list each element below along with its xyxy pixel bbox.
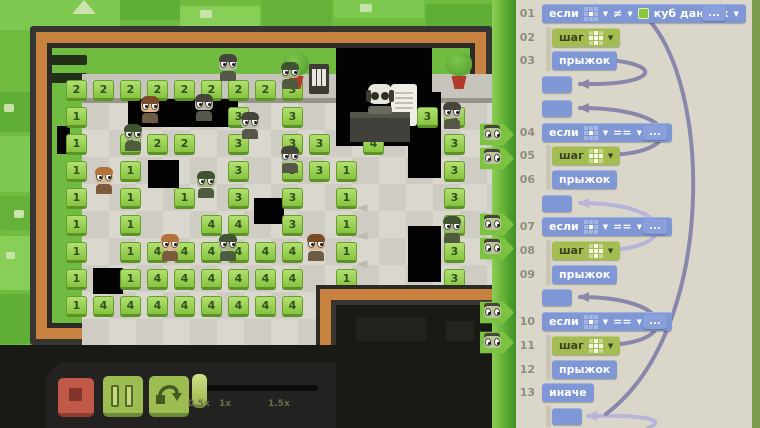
number-tile: 4	[282, 269, 303, 290]
number-tile: 3	[228, 161, 249, 182]
indent-guide	[546, 240, 551, 285]
floor-arrow-icon: ◄	[356, 198, 368, 216]
number-tile: 3	[444, 188, 465, 209]
number-tile: 3	[309, 161, 330, 182]
worker-character	[123, 124, 143, 151]
jump-block[interactable]: прыжок	[552, 360, 617, 379]
jump-label[interactable]	[542, 289, 572, 306]
number-tile: 2	[66, 80, 87, 101]
number-tile: 1	[120, 269, 141, 290]
number-tile: 4	[228, 215, 249, 236]
pause-icon	[111, 385, 119, 407]
chevron-down-icon: ▼	[603, 318, 608, 326]
number-tile: 1	[66, 215, 87, 236]
chevron-down-icon: ▼	[603, 223, 608, 231]
options-button[interactable]: ...	[643, 314, 667, 329]
worker-character	[196, 171, 216, 198]
number-tile: 1	[336, 188, 357, 209]
number-tile: 1	[174, 188, 195, 209]
boss-character	[366, 84, 394, 114]
number-tile: 4	[93, 296, 114, 317]
stop-icon	[69, 388, 82, 401]
direction-grid-dropdown[interactable]	[589, 244, 603, 258]
number-tile: 2	[228, 80, 249, 101]
chevron-down-icon: ▼	[637, 129, 642, 137]
operator-dropdown[interactable]: ==	[613, 220, 631, 233]
step-over-button[interactable]	[149, 376, 189, 417]
indent-guide	[546, 145, 551, 190]
chevron-down-icon: ▼	[603, 129, 608, 137]
number-tile: 1	[120, 215, 141, 236]
pit-void	[254, 198, 284, 224]
line-number: 13	[515, 386, 535, 399]
line-number: 01	[515, 7, 535, 20]
speed-label: 1x	[219, 399, 231, 409]
number-tile: 1	[66, 242, 87, 263]
jump-label[interactable]	[552, 408, 582, 425]
line-number: 11	[515, 339, 535, 352]
chevron-down-icon: ▼	[608, 342, 613, 350]
line-number: 06	[515, 173, 535, 186]
pit-void	[148, 160, 179, 188]
direction-grid-dropdown[interactable]	[584, 220, 598, 234]
direction-grid-dropdown[interactable]	[589, 339, 603, 353]
pit-void	[408, 226, 441, 282]
number-tile: 4	[201, 269, 222, 290]
line-number: 07	[515, 220, 535, 233]
number-tile: 4	[255, 269, 276, 290]
number-tile: 4	[120, 296, 141, 317]
chevron-down-icon: ▼	[637, 318, 642, 326]
direction-grid-dropdown[interactable]	[589, 31, 603, 45]
worker-character	[194, 94, 214, 121]
chevron-down-icon: ▼	[603, 10, 608, 18]
chevron-down-icon: ▼	[627, 10, 632, 18]
number-tile: 4	[201, 296, 222, 317]
boss-desk	[350, 112, 410, 142]
step-block[interactable]: шаг▼	[552, 336, 620, 355]
worker-character	[218, 234, 238, 261]
stop-button[interactable]	[58, 378, 94, 417]
worker-character	[442, 102, 462, 129]
number-tile: 3	[282, 188, 303, 209]
number-tile: 1	[66, 269, 87, 290]
number-tile: 3	[444, 242, 465, 263]
direction-grid-dropdown[interactable]	[584, 7, 598, 21]
data-cube-icon	[638, 8, 649, 19]
line-number: 04	[515, 126, 535, 139]
number-tile: 4	[174, 296, 195, 317]
number-tile: 3	[282, 107, 303, 128]
line-number: 10	[515, 315, 535, 328]
speed-label: 1.5x	[268, 399, 290, 409]
jump-block[interactable]: прыжок	[552, 265, 617, 284]
file-cabinet-icon	[309, 64, 329, 94]
chevron-down-icon: ▼	[608, 34, 613, 42]
number-tile: 2	[93, 80, 114, 101]
jump-block[interactable]: прыжок	[552, 51, 617, 70]
number-tile: 1	[66, 296, 87, 317]
number-tile: 1	[66, 188, 87, 209]
number-tile: 3	[309, 134, 330, 155]
pit-void	[93, 268, 123, 294]
number-tile: 2	[174, 80, 195, 101]
number-tile: 4	[228, 269, 249, 290]
number-tile: 3	[417, 107, 438, 128]
line-number: 08	[515, 244, 535, 257]
direction-grid-dropdown[interactable]	[584, 315, 598, 329]
jump-label[interactable]	[542, 100, 572, 117]
number-tile: 3	[228, 188, 249, 209]
worker-character	[306, 234, 326, 261]
line-number: 09	[515, 268, 535, 281]
worker-character	[442, 216, 462, 243]
speed-slider-track[interactable]	[198, 385, 318, 391]
floor-arrow-icon: ◄	[356, 226, 368, 244]
step-block[interactable]: шаг▼	[552, 28, 620, 47]
number-tile: 2	[174, 134, 195, 155]
number-tile: 3	[444, 134, 465, 155]
glasses-icon	[371, 92, 379, 100]
number-tile: 4	[282, 296, 303, 317]
game-screen: ◄◄◄ 222222223133331222333431133313111331…	[0, 0, 760, 428]
number-tile: 1	[336, 215, 357, 236]
number-tile: 2	[147, 134, 168, 155]
chevron-down-icon: ▼	[733, 10, 738, 18]
indent-guide	[546, 27, 551, 71]
jump-block[interactable]: прыжок	[552, 170, 617, 189]
number-tile: 4	[147, 269, 168, 290]
direction-grid-dropdown[interactable]	[584, 126, 598, 140]
number-tile: 1	[66, 161, 87, 182]
direction-grid-dropdown[interactable]	[589, 149, 603, 163]
board-step-cutout	[316, 285, 492, 345]
options-button[interactable]: ...	[643, 125, 667, 140]
right-edge	[752, 0, 760, 428]
number-tile: 2	[120, 80, 141, 101]
floor-arrow-icon: ◄	[356, 254, 368, 272]
number-tile: 4	[255, 242, 276, 263]
line-number: 12	[515, 363, 535, 376]
jump-label[interactable]	[542, 76, 572, 93]
number-tile: 1	[336, 161, 357, 182]
worker-character	[280, 146, 300, 173]
number-tile: 4	[255, 296, 276, 317]
line-number: 05	[515, 149, 535, 162]
number-tile: 3	[444, 161, 465, 182]
number-tile: 1	[66, 107, 87, 128]
jump-label[interactable]	[542, 195, 572, 212]
worker-character	[94, 167, 114, 194]
number-tile: 4	[201, 215, 222, 236]
worker-character	[240, 112, 260, 139]
step-block[interactable]: шаг▼	[552, 146, 620, 165]
operator-dropdown[interactable]: ==	[613, 315, 631, 328]
speed-label: 0.5x	[188, 399, 210, 409]
line-number: 03	[515, 54, 535, 67]
chevron-down-icon: ▼	[608, 247, 613, 255]
number-tile: 3	[282, 215, 303, 236]
worker-character	[218, 54, 238, 81]
worker-character	[140, 96, 160, 123]
chevron-down-icon: ▼	[608, 152, 613, 160]
options-button[interactable]: ...	[702, 6, 726, 21]
chevron-down-icon: ▼	[637, 223, 642, 231]
indent-guide	[546, 406, 551, 427]
operator-dropdown[interactable]: ≠	[613, 7, 622, 20]
number-tile: 1	[336, 242, 357, 263]
number-tile: 4	[282, 242, 303, 263]
number-tile: 1	[66, 134, 87, 155]
number-tile: 2	[255, 80, 276, 101]
plant-icon	[446, 52, 472, 76]
else-block[interactable]: иначе	[542, 383, 594, 402]
step-block[interactable]: шаг▼	[552, 241, 620, 260]
options-button[interactable]: ...	[643, 219, 667, 234]
number-tile: 1	[120, 188, 141, 209]
worker-character	[280, 62, 300, 89]
number-tile: 4	[174, 269, 195, 290]
number-tile: 1	[120, 161, 141, 182]
line-number: 02	[515, 31, 535, 44]
number-tile: 1	[120, 242, 141, 263]
indent-guide	[546, 335, 551, 380]
number-tile: 4	[228, 296, 249, 317]
pause-button[interactable]	[103, 376, 143, 417]
number-tile: 4	[147, 296, 168, 317]
worker-character	[160, 234, 180, 261]
step-over-icon	[152, 379, 186, 411]
operator-dropdown[interactable]: ==	[613, 126, 631, 139]
